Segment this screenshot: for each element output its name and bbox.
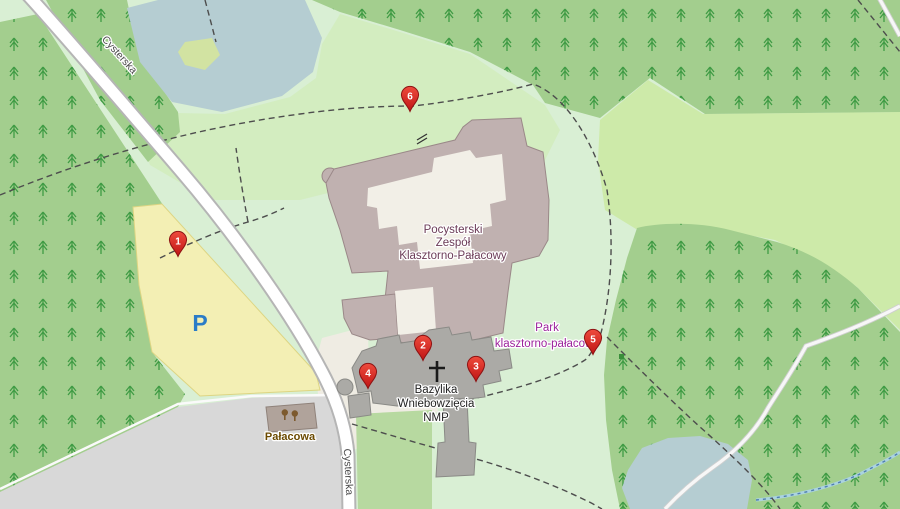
svg-text:1: 1 [175,237,181,248]
svg-text:Klasztorno-Pałacowy: Klasztorno-Pałacowy [399,250,507,262]
map-viewport[interactable]: Pocysterski Zespół Klasztorno-Pałacowy B… [0,0,900,509]
palace-courtyard-south [395,287,436,335]
svg-text:Pocysterski: Pocysterski [424,224,483,236]
svg-text:Park: Park [535,322,559,334]
svg-text:5: 5 [590,335,596,346]
svg-text:4: 4 [365,369,371,380]
svg-text:Wniebowzięcia: Wniebowzięcia [398,398,475,410]
palacowa-building [266,403,317,432]
palacowa-label: Pałacowa [265,431,316,443]
svg-text:2: 2 [420,341,426,352]
scrub-area [356,410,432,509]
svg-text:6: 6 [407,92,413,103]
street-label-cysterska-bottom: Cysterska [341,448,355,495]
map-canvas[interactable]: Pocysterski Zespół Klasztorno-Pałacowy B… [0,0,900,509]
parking-p-symbol: P [192,310,207,336]
svg-text:Zespół: Zespół [436,237,471,249]
svg-text:klasztorno-pałacowy: klasztorno-pałacowy [495,338,599,350]
poi-square-icon [619,354,624,359]
svg-text:Bazylika: Bazylika [415,384,458,396]
svg-text:NMP: NMP [423,412,449,424]
svg-text:3: 3 [473,362,479,373]
